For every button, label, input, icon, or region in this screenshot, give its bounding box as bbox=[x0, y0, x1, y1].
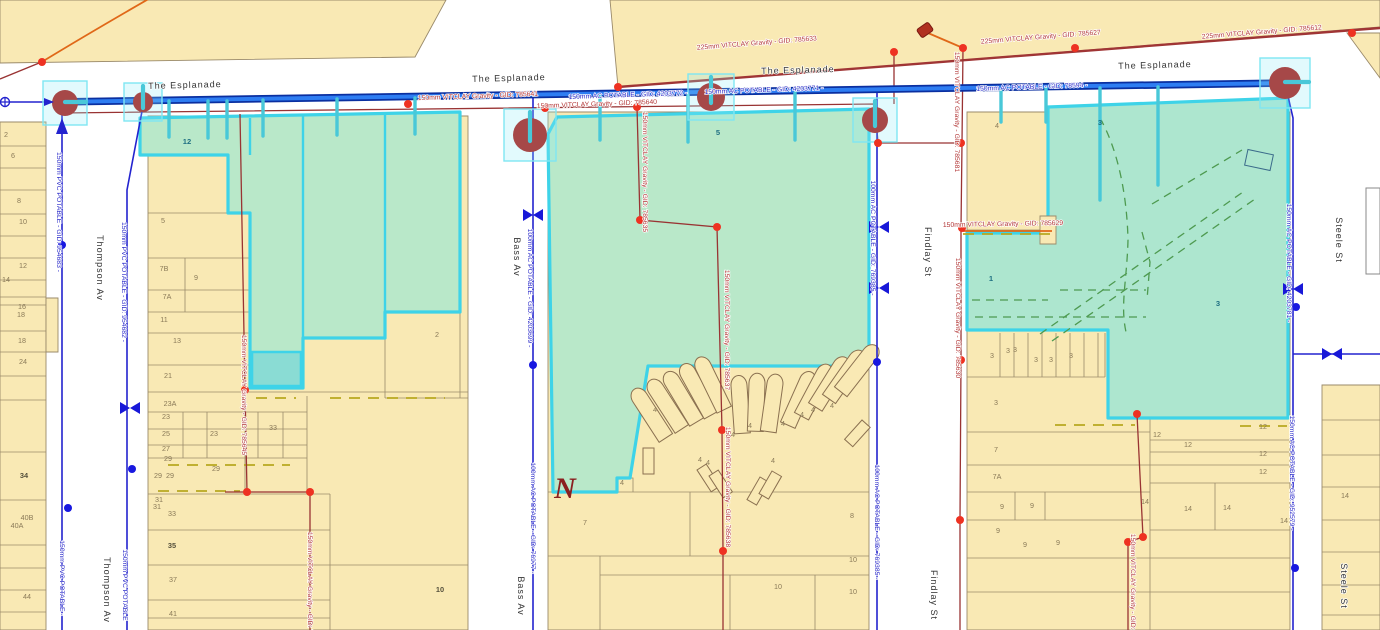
parcel-number-label: 8 bbox=[17, 196, 21, 205]
parcel-number-label: 10 bbox=[849, 587, 857, 596]
parcel-number-label: 9 bbox=[996, 526, 1000, 535]
sewer-node-dot[interactable] bbox=[1071, 44, 1079, 52]
map-canvas[interactable]: #map-svg use{fill:#f9e9b4;stroke:#8a7050… bbox=[0, 0, 1380, 630]
parcel-number-label: 18 bbox=[17, 310, 25, 319]
water-pipe-label: 150mm PVC POTABLE - bbox=[58, 540, 65, 615]
parcel-number-label: 24 bbox=[19, 357, 27, 366]
parcel-number-label: 23A bbox=[164, 399, 177, 408]
parcel-number-label: 4 bbox=[830, 401, 834, 410]
selected-parcel-west-sub[interactable] bbox=[252, 352, 301, 386]
parcel-number-label: 33 bbox=[168, 509, 176, 518]
parcel-number-label: 44 bbox=[23, 592, 31, 601]
street-label: The Esplanade bbox=[472, 72, 546, 84]
parcel-number-label: 4 bbox=[748, 421, 752, 430]
sewer-pipe-label: 150mm VITCLAY Gravity - GID: 785639 bbox=[306, 532, 313, 630]
parcel-number-label: 10 bbox=[774, 582, 782, 591]
street-label: The Esplanade bbox=[148, 79, 222, 91]
parcel-number-label: 3 bbox=[1049, 355, 1053, 364]
sewer-node-dot[interactable] bbox=[404, 100, 412, 108]
sewer-pipe-label: 150mm VITCLAY Gravity - GID: 785635 bbox=[641, 112, 648, 232]
street-label: Findlay St bbox=[923, 227, 933, 277]
parcel-number-label: 35 bbox=[168, 541, 176, 550]
parcel-number-label: 27 bbox=[162, 444, 170, 453]
parcel-number-label: 3 bbox=[1098, 118, 1102, 127]
parcel-number-label: 12 bbox=[183, 137, 191, 146]
parcel-number-label: 34 bbox=[20, 471, 29, 480]
gis-map-viewport[interactable]: #map-svg use{fill:#f9e9b4;stroke:#8a7050… bbox=[0, 0, 1380, 630]
parcel-number-label: 11 bbox=[160, 315, 167, 324]
parcel-number-label: 6 bbox=[11, 151, 15, 160]
sewer-node-dot[interactable] bbox=[874, 139, 882, 147]
parcel-number-label: 9 bbox=[194, 273, 198, 282]
parcel-number-label: 12 bbox=[1259, 422, 1267, 431]
water-pipe-label: 150mm AC POTABLE - GID: 78594 - bbox=[976, 82, 1087, 93]
water-pipe-label: 100mm AC POTABLE - GID: 769385 - bbox=[873, 464, 880, 579]
sewer-pipe-label: 150mm VITCLAY Gravity - GID: 785637 bbox=[723, 270, 730, 390]
water-junction-dot[interactable] bbox=[128, 465, 136, 473]
sewer-pipe-label: 150mm VITCLAY Gravity - GID: 785681 bbox=[953, 52, 960, 172]
parcel-number-label: 7A bbox=[993, 472, 1002, 481]
water-pipe-label: 150mm PVC POTABLE - GID: 954683 - bbox=[55, 152, 62, 272]
parcel-number-label: 4 bbox=[620, 478, 624, 487]
sewer-node-dot[interactable] bbox=[243, 488, 251, 496]
street-label: Thompson Av bbox=[102, 557, 112, 623]
building-outline bbox=[1366, 188, 1380, 274]
parcel-number-label: 3 bbox=[1034, 355, 1038, 364]
water-junction-dot[interactable] bbox=[64, 504, 72, 512]
parcel-number-label: 10 bbox=[436, 585, 444, 594]
parcel-number-label: 37 bbox=[169, 575, 177, 584]
parcel-number-label: 41 bbox=[169, 609, 177, 618]
street-label: Findlay St bbox=[929, 570, 939, 620]
parcel-number-label: 25 bbox=[162, 429, 170, 438]
sewer-pipe-label: 150mm VITCLAY Gravity - GID: 785638 bbox=[724, 427, 731, 547]
parcel-number-label: 7B bbox=[160, 264, 169, 273]
sewer-node-dot[interactable] bbox=[959, 44, 967, 52]
water-main-thompson-east[interactable] bbox=[127, 106, 143, 630]
parcel-number-label: 4 bbox=[706, 458, 710, 467]
sewer-pipe-label: 150mm VITCLAY Gravity - GID: 785630 bbox=[954, 258, 961, 378]
parcel-number-label: 3 bbox=[1069, 351, 1073, 360]
parcel-number-label: 13 bbox=[173, 336, 181, 345]
street-label: Thompson Av bbox=[95, 235, 105, 301]
parcel-number-label: 14 bbox=[1141, 497, 1149, 506]
sewer-pipe-label: 150mm VITCLAY Gravity - GID: 785628 bbox=[1129, 534, 1136, 630]
sewer-node-dot[interactable] bbox=[956, 516, 964, 524]
sewer-node-dot[interactable] bbox=[1348, 29, 1356, 37]
parcel-number-label: 3 bbox=[1216, 299, 1220, 308]
street-label: The Esplanade bbox=[761, 64, 835, 76]
parcel-number-label: 4 bbox=[800, 410, 804, 419]
parcel-number-label: 9 bbox=[1023, 540, 1027, 549]
parcel-number-label: 12 bbox=[1259, 449, 1267, 458]
parcel-number-label: 21 bbox=[164, 371, 172, 380]
parcel-number-label: 31 bbox=[153, 502, 161, 511]
sewer-node-dot[interactable] bbox=[1139, 533, 1147, 541]
valve-icon[interactable] bbox=[120, 402, 140, 414]
parcel-number-label: 3 bbox=[990, 351, 994, 360]
sewer-node-dot[interactable] bbox=[1133, 410, 1141, 418]
sewer-node-dot[interactable] bbox=[306, 488, 314, 496]
valve-icon[interactable] bbox=[1322, 348, 1342, 360]
parcel-number-label: 2 bbox=[4, 130, 8, 139]
parcel-number-label: 4 bbox=[731, 430, 735, 439]
parcel-number-label: 23 bbox=[162, 412, 170, 421]
sewer-pipe-label: 150mm VITCLAY Gravity - GID: 785645 bbox=[240, 335, 247, 455]
water-pipe-label: 100mm AC POTABLE - GID: 76977 - bbox=[529, 462, 536, 573]
north-mark-label: N bbox=[553, 472, 577, 505]
sewer-node-dot[interactable] bbox=[38, 58, 46, 66]
parcel-number-label: 12 bbox=[1153, 430, 1161, 439]
parcel-number-label: 33 bbox=[269, 423, 277, 432]
parcel-number-label: 29 bbox=[212, 464, 220, 473]
parcel-number-label: 4 bbox=[781, 419, 785, 428]
water-pipe-label: 150mm AC POTABLE - GID: 952579 - bbox=[1288, 415, 1295, 530]
water-junction-dot[interactable] bbox=[1292, 303, 1300, 311]
parcel-number-label: 40A bbox=[11, 521, 24, 530]
sewer-node-dot[interactable] bbox=[719, 547, 727, 555]
parcel-number-label: 14 bbox=[1223, 503, 1231, 512]
parcel-number-label: 12 bbox=[1259, 467, 1267, 476]
parcel-number-label: 2 bbox=[435, 330, 439, 339]
sewer-node-dot[interactable] bbox=[890, 48, 898, 56]
parcel-number-label: 10 bbox=[19, 217, 27, 226]
parcel-number-label: 12 bbox=[19, 261, 27, 270]
parcel-number-label: 12 bbox=[1184, 440, 1192, 449]
street-label: Steele St bbox=[1339, 563, 1349, 609]
parcel-number-label: 29 bbox=[166, 471, 174, 480]
parcel-number-label: 8 bbox=[850, 511, 854, 520]
parcel-number-label: 4 bbox=[995, 121, 999, 130]
water-junction-dot[interactable] bbox=[529, 361, 537, 369]
parcel-number-label: 9 bbox=[1056, 538, 1060, 547]
parcel-number-label: 7 bbox=[994, 445, 998, 454]
parcel-number-label: 7A bbox=[163, 292, 172, 301]
parcel-number-label: 14 bbox=[1280, 516, 1288, 525]
parcel-number-label: 3 bbox=[994, 398, 998, 407]
parcel-number-label: 4 bbox=[653, 405, 657, 414]
sewer-node-dot[interactable] bbox=[614, 83, 622, 91]
parcel-number-label: 23 bbox=[210, 429, 218, 438]
parcel-number-label: 29 bbox=[164, 454, 172, 463]
street-label: The Esplanade bbox=[1118, 59, 1192, 71]
water-pipe-label: 150mm PVC POTABLE bbox=[121, 549, 128, 621]
water-junction-dot[interactable] bbox=[873, 358, 881, 366]
parcel-number-label: 14 bbox=[2, 275, 10, 284]
parcel-number-label: 3 bbox=[1013, 345, 1017, 354]
street-label: Bass Av bbox=[516, 576, 526, 615]
parcel-number-label: 10 bbox=[849, 555, 857, 564]
street-label: Bass Av bbox=[512, 237, 522, 276]
parcel-number-label: 29 bbox=[154, 471, 162, 480]
parcel-number-label: 9 bbox=[1000, 502, 1004, 511]
parcel-number-label: 9 bbox=[1030, 501, 1034, 510]
sewer-node-dot[interactable] bbox=[713, 223, 721, 231]
parcel-number-label: 4 bbox=[811, 405, 815, 414]
parcel-number-label: 3 bbox=[1006, 346, 1010, 355]
parcel-number-label: 14 bbox=[1341, 491, 1349, 500]
water-pipe-label: 100mm AC POTABLE - GID: 4203699 - bbox=[526, 229, 533, 348]
parcel-number-label: 4 bbox=[771, 456, 775, 465]
water-pipe-label: 100mm AC POTABLE - GID: 769385 - bbox=[869, 180, 876, 295]
parcel-number-label: 14 bbox=[1184, 504, 1192, 513]
water-pipe-label: 150mm AC POTABLE - GID: 4203781 - bbox=[1285, 204, 1292, 323]
water-pipe-label: 150mm PVC POTABLE - GID: 954682 - bbox=[120, 222, 127, 342]
water-junction-dot[interactable] bbox=[1291, 564, 1299, 572]
parcel-number-label: 4 bbox=[698, 455, 702, 464]
parcel-number-label: 7 bbox=[583, 518, 587, 527]
street-label: Steele St bbox=[1334, 217, 1344, 263]
parcel-number-label: 18 bbox=[18, 336, 26, 345]
parcel-number-label: 5 bbox=[161, 216, 165, 225]
